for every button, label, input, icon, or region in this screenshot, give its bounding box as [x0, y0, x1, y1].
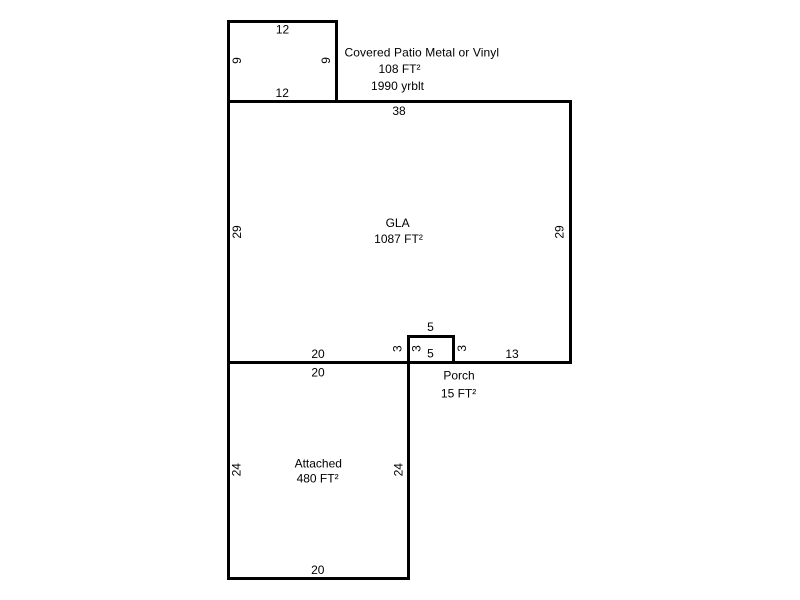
svg-text:5: 5 [427, 347, 434, 361]
svg-text:108 FT²: 108 FT² [378, 62, 420, 76]
svg-text:GLA: GLA [386, 216, 410, 230]
svg-text:9: 9 [319, 57, 333, 64]
svg-text:3: 3 [455, 345, 469, 352]
svg-text:3: 3 [391, 345, 405, 352]
svg-text:24: 24 [230, 463, 244, 477]
svg-text:Attached: Attached [295, 457, 342, 471]
svg-text:15 FT²: 15 FT² [441, 387, 476, 401]
svg-text:20: 20 [311, 366, 325, 380]
svg-text:20: 20 [311, 347, 325, 361]
svg-text:3: 3 [410, 345, 424, 352]
svg-text:38: 38 [392, 104, 406, 118]
svg-text:29: 29 [230, 225, 244, 239]
svg-text:5: 5 [427, 320, 434, 334]
svg-text:29: 29 [553, 225, 567, 239]
svg-text:20: 20 [311, 563, 325, 577]
svg-text:12: 12 [276, 23, 290, 37]
svg-text:1087 FT²: 1087 FT² [374, 232, 423, 246]
svg-text:Covered Patio Metal or Vinyl: Covered Patio Metal or Vinyl [345, 46, 500, 60]
svg-text:12: 12 [276, 86, 290, 100]
svg-text:1990 yrblt: 1990 yrblt [371, 79, 425, 93]
svg-text:24: 24 [391, 463, 405, 477]
svg-text:9: 9 [230, 57, 244, 64]
svg-text:Porch: Porch [443, 369, 474, 383]
svg-text:13: 13 [505, 347, 519, 361]
svg-text:480 FT²: 480 FT² [297, 472, 339, 486]
